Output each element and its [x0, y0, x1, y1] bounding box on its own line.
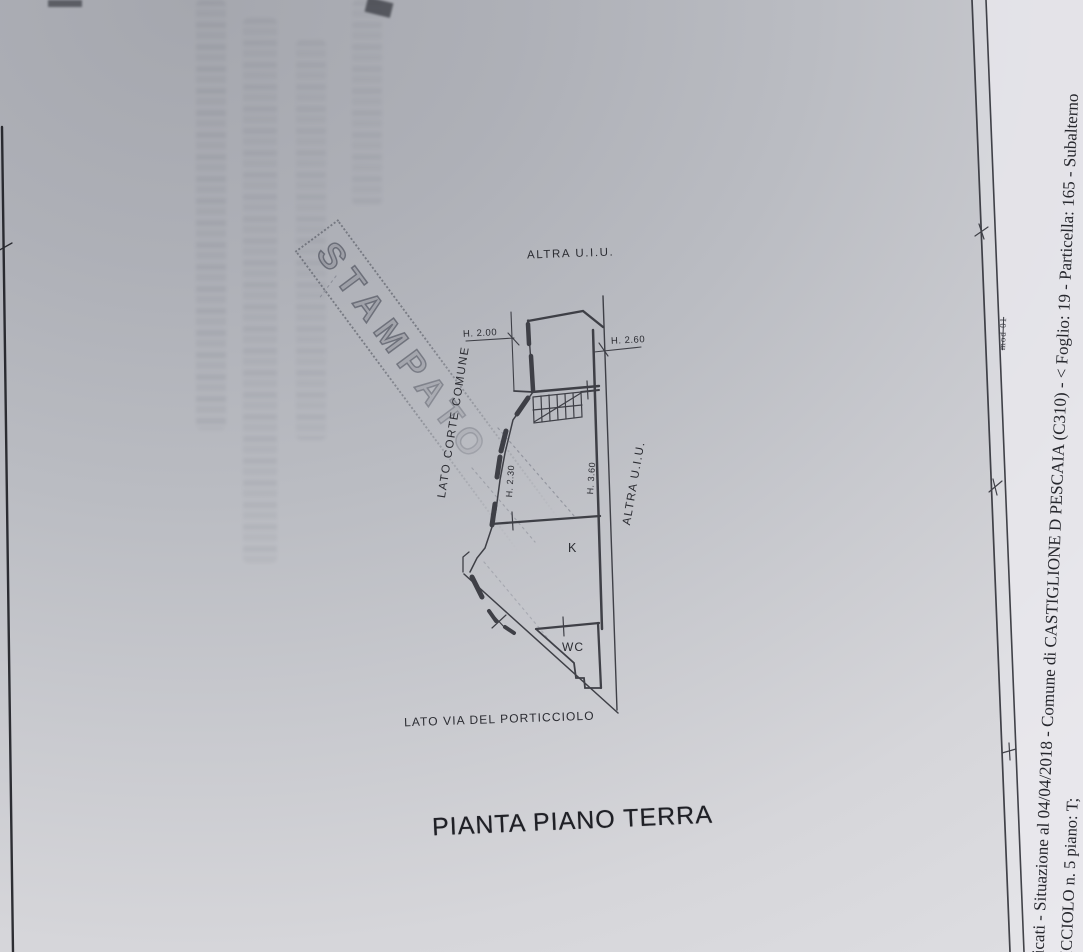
room-label-k: K — [568, 541, 576, 555]
dimension-h260: H. 2.60 — [611, 334, 646, 347]
room-label-wc: WC — [562, 640, 584, 654]
scanned-cadastral-plan-page: STAMPATO ALTRA U.I.U. LATO CORTE COMUNE … — [0, 0, 1083, 952]
dimension-h200: H. 2.00 — [463, 327, 498, 340]
property-boundary-line — [603, 296, 617, 710]
wall-street-side — [464, 574, 618, 713]
staircase — [532, 381, 599, 423]
margin-mod-label: mod 01 — [997, 317, 1008, 351]
walls-wc-room — [537, 623, 601, 688]
dimension-lines — [466, 312, 641, 391]
